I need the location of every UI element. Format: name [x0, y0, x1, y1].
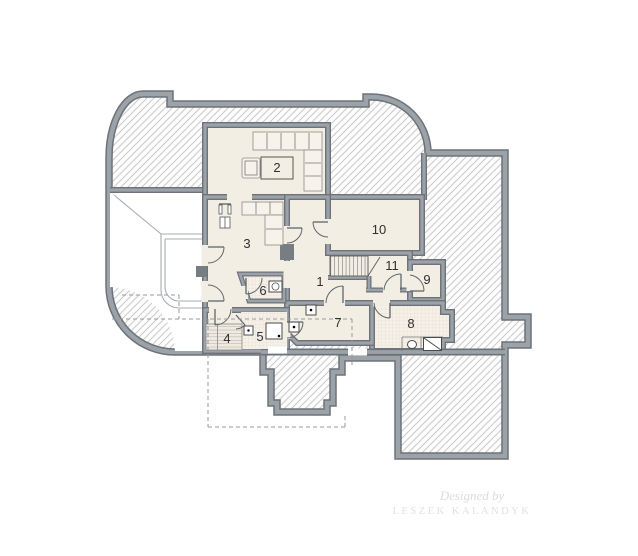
room-label-1: 1	[316, 274, 323, 289]
floor-plan-drawing: 1 2 3 4 5 6 7 8 9 10 11 Designed by LESZ…	[0, 0, 638, 556]
room-label-10: 10	[372, 222, 386, 237]
stair-treads	[330, 256, 368, 276]
window-1	[268, 347, 287, 354]
room-label-6: 6	[259, 283, 266, 298]
watermark-author: LESZEK KALANDYK	[393, 506, 532, 517]
room-label-4: 4	[223, 331, 230, 346]
room-label-9: 9	[423, 272, 430, 287]
watermark-designed-by: Designed by	[439, 488, 505, 503]
room-7-corridor	[287, 303, 372, 343]
floor-plan-page: 1 2 3 4 5 6 7 8 9 10 11 Designed by LESZ…	[0, 0, 638, 556]
room-label-3: 3	[243, 236, 250, 251]
window-2	[348, 349, 367, 356]
room-label-11: 11	[385, 258, 399, 273]
toilet-icon	[408, 341, 417, 349]
room-label-5: 5	[256, 329, 263, 344]
room-6-fixtures	[269, 281, 282, 292]
armchair-icon	[242, 158, 260, 178]
wall-pier-small	[196, 266, 207, 277]
designer-watermark: Designed by LESZEK KALANDYK	[393, 488, 532, 517]
room-label-8: 8	[407, 316, 414, 331]
room-label-7: 7	[334, 315, 341, 330]
room-label-2: 2	[273, 160, 280, 175]
wall-pier	[280, 244, 294, 260]
